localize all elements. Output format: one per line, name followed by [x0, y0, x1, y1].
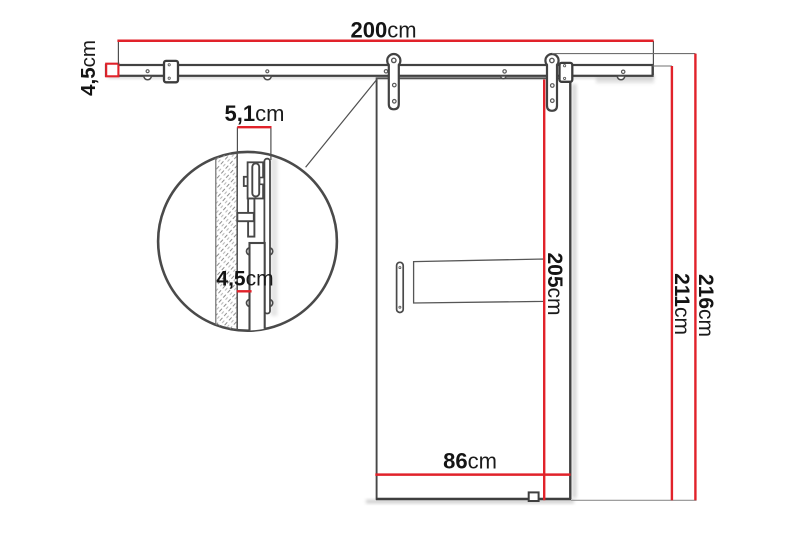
svg-text:211cm: 211cm	[670, 273, 693, 335]
svg-text:200cm: 200cm	[350, 17, 416, 42]
svg-text:5,1cm: 5,1cm	[225, 101, 285, 126]
svg-text:86cm: 86cm	[443, 449, 497, 474]
svg-text:205cm: 205cm	[543, 252, 566, 315]
svg-text:4,5cm: 4,5cm	[77, 40, 100, 96]
svg-text:216cm: 216cm	[694, 274, 717, 337]
svg-text:4,5cm: 4,5cm	[216, 268, 273, 291]
